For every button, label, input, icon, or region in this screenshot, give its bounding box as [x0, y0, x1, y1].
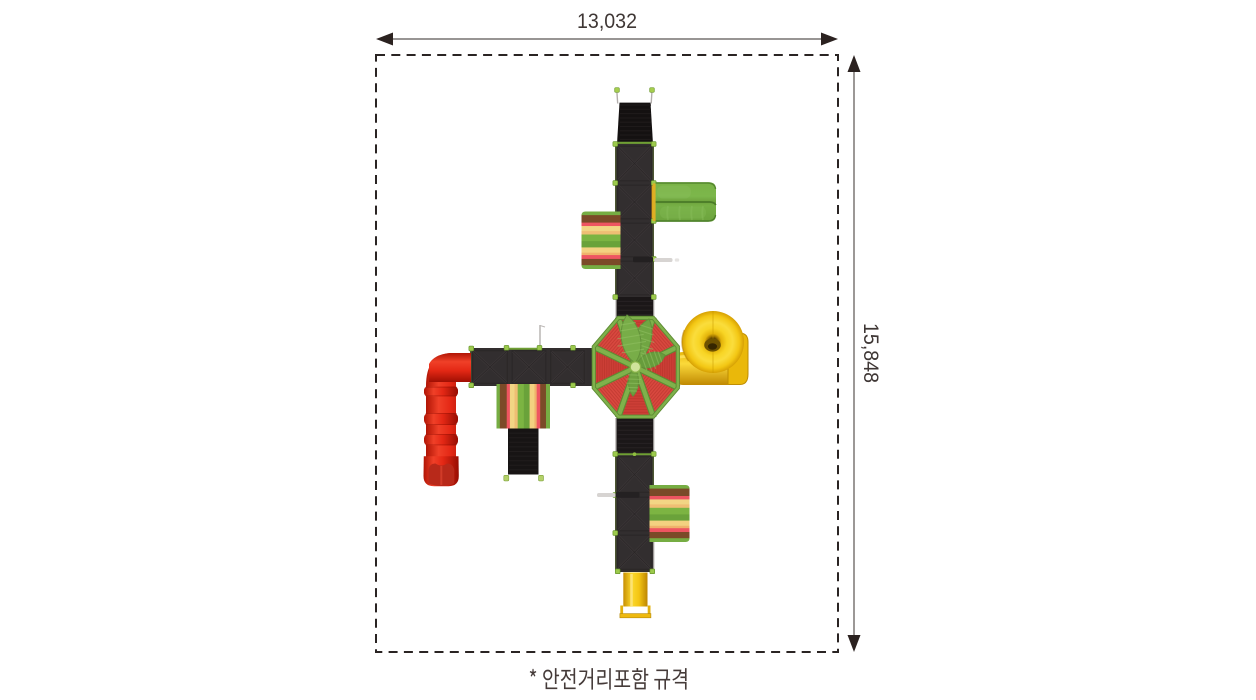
- svg-text:15,848: 15,848: [859, 323, 883, 383]
- svg-text:13,032: 13,032: [577, 9, 637, 33]
